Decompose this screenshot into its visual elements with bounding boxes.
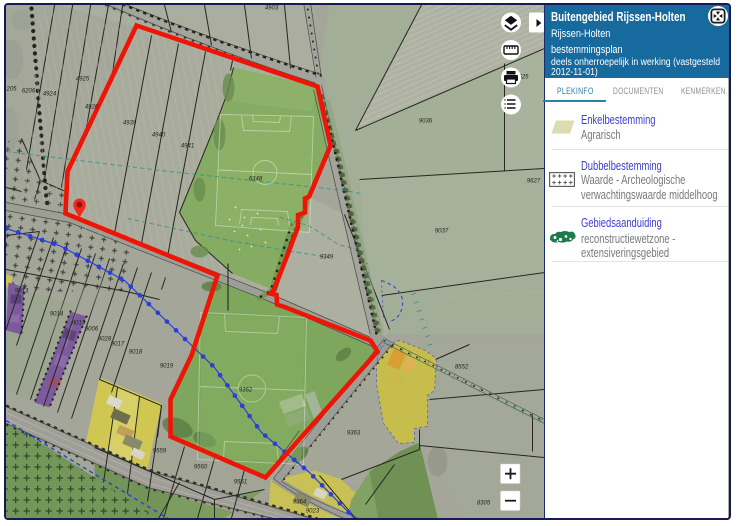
svg-text:4924: 4924 — [43, 92, 57, 98]
svg-text:8552: 8552 — [455, 365, 469, 371]
svg-text:4903: 4903 — [265, 6, 279, 12]
svg-text:9559: 9559 — [153, 449, 167, 455]
svg-text:9014: 9014 — [50, 312, 64, 318]
svg-text:9028: 9028 — [98, 337, 112, 343]
svg-text:9036: 9036 — [419, 119, 433, 125]
svg-text:205: 205 — [6, 87, 17, 93]
svg-text:8305: 8305 — [477, 501, 491, 507]
svg-text:6348: 6348 — [249, 177, 263, 183]
svg-text:9013: 9013 — [15, 289, 29, 295]
svg-text:9363: 9363 — [347, 431, 361, 437]
svg-text:9013: 9013 — [72, 321, 86, 327]
svg-text:9560: 9560 — [194, 465, 208, 471]
svg-text:6206: 6206 — [22, 89, 36, 95]
svg-text:4939: 4939 — [123, 121, 137, 127]
svg-text:9017: 9017 — [111, 342, 125, 348]
svg-text:9019: 9019 — [160, 364, 174, 370]
svg-text:9362: 9362 — [239, 388, 253, 394]
svg-text:9018: 9018 — [129, 350, 143, 356]
svg-text:9561: 9561 — [234, 480, 247, 486]
svg-text:9006: 9006 — [85, 327, 99, 333]
svg-text:4940: 4940 — [152, 133, 166, 139]
svg-text:9037: 9037 — [435, 229, 449, 235]
svg-text:9023: 9023 — [306, 509, 320, 515]
svg-text:4926: 4926 — [85, 105, 99, 111]
svg-text:9364: 9364 — [293, 500, 307, 506]
svg-text:4941: 4941 — [181, 144, 194, 150]
svg-text:9349: 9349 — [320, 255, 334, 261]
svg-text:4925: 4925 — [76, 77, 90, 83]
